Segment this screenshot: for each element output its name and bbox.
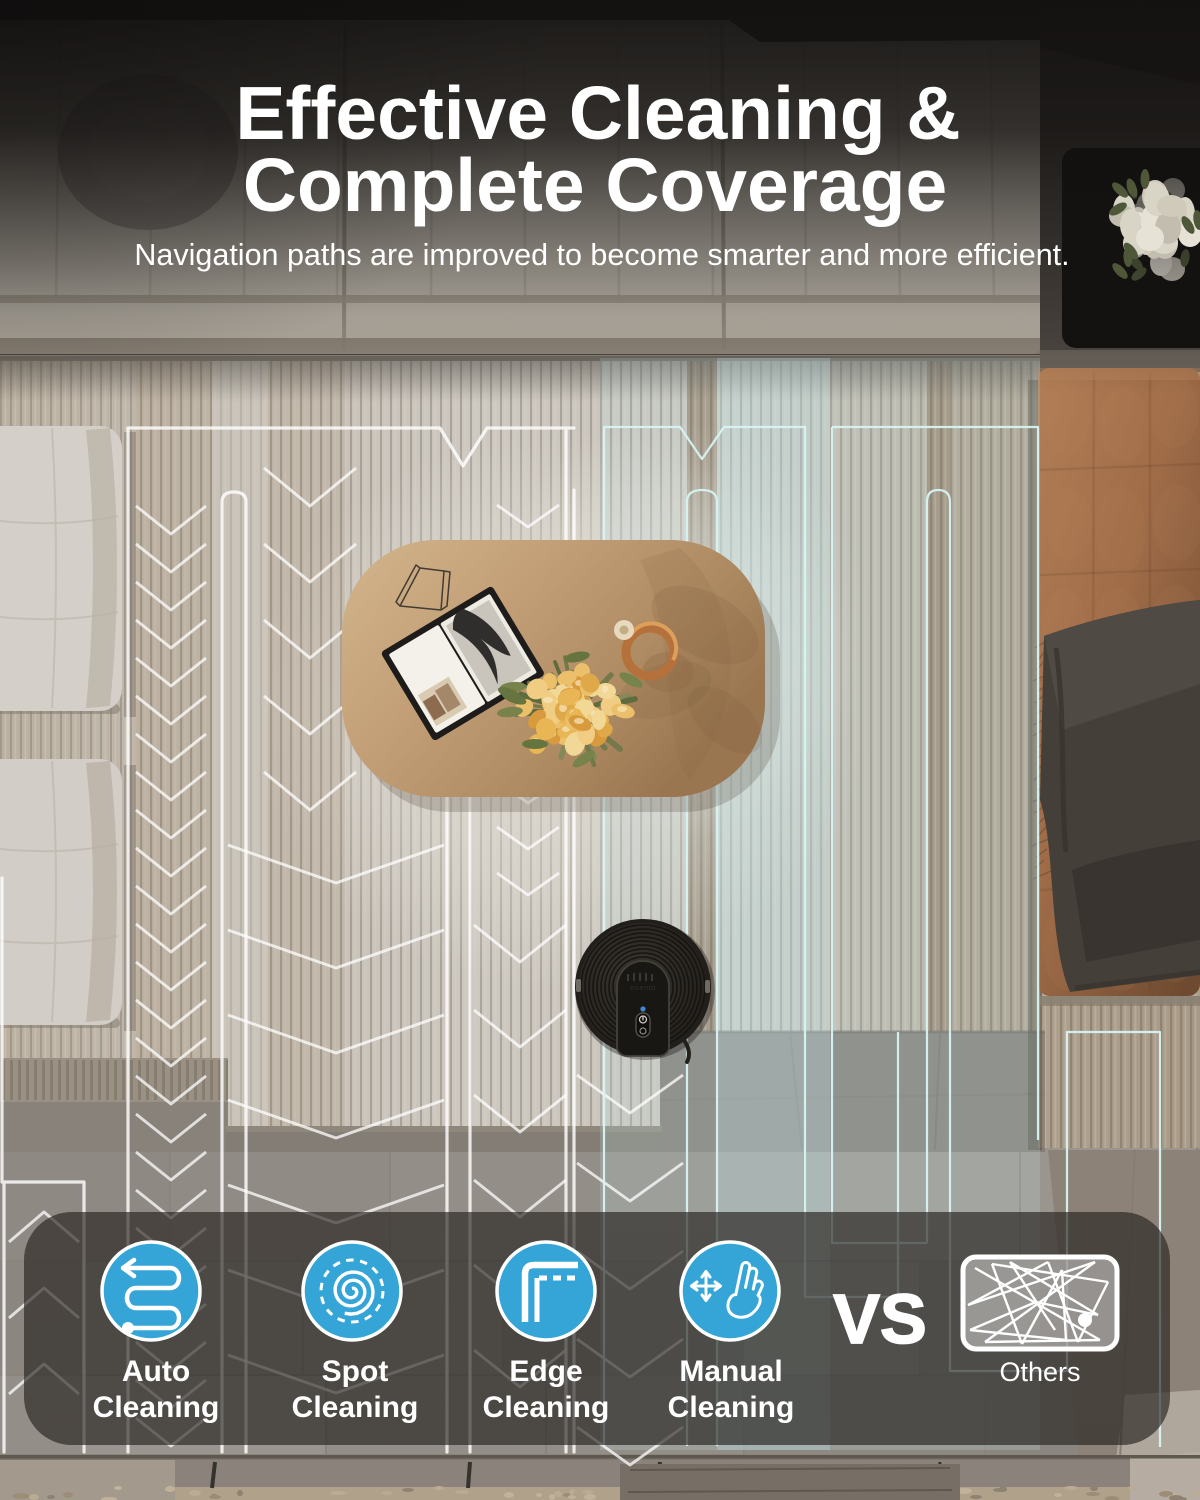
svg-text:Cleaning: Cleaning bbox=[668, 1391, 795, 1424]
svg-text:Spot: Spot bbox=[322, 1355, 389, 1388]
svg-text:Others: Others bbox=[999, 1357, 1080, 1387]
svg-text:eoento: eoento bbox=[630, 983, 656, 992]
svg-text:Manual: Manual bbox=[679, 1355, 782, 1388]
svg-text:Cleaning: Cleaning bbox=[292, 1391, 419, 1424]
svg-text:Edge: Edge bbox=[509, 1355, 582, 1388]
svg-text:Cleaning: Cleaning bbox=[483, 1391, 610, 1424]
svg-text:Auto: Auto bbox=[122, 1355, 190, 1388]
svg-text:Cleaning: Cleaning bbox=[93, 1391, 220, 1424]
svg-text:Complete Coverage: Complete Coverage bbox=[243, 143, 947, 227]
svg-text:Navigation paths are improved: Navigation paths are improved to become … bbox=[134, 238, 1069, 272]
svg-text:VS: VS bbox=[833, 1280, 926, 1358]
